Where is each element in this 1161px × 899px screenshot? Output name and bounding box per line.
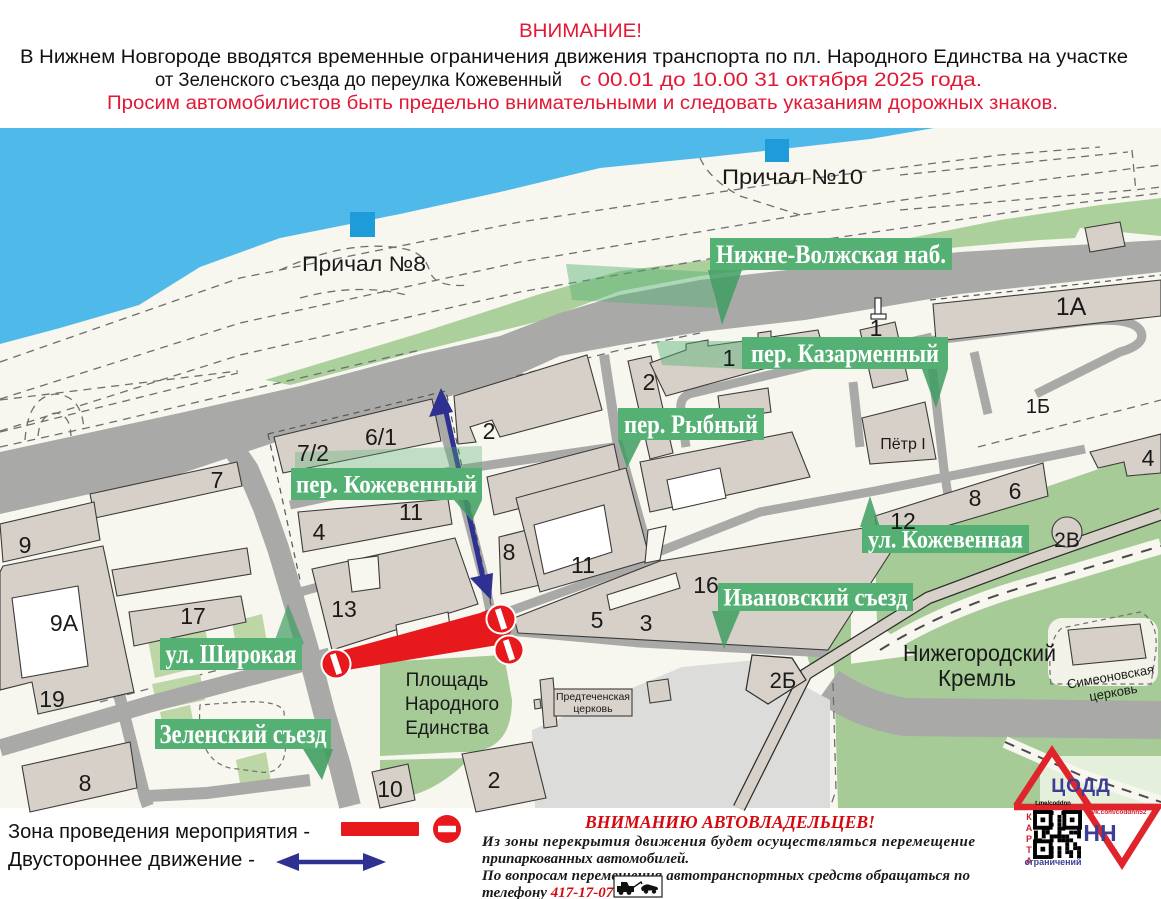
svg-text:ВНИМАНИЮ АВТОВЛАДЕЛЬЦЕВ!: ВНИМАНИЮ АВТОВЛАДЕЛЬЦЕВ!	[584, 812, 875, 832]
svg-text:11: 11	[571, 552, 595, 578]
svg-text:2: 2	[483, 418, 496, 444]
svg-text:2В: 2В	[1054, 529, 1080, 552]
svg-text:пер. Кожевенный: пер. Кожевенный	[296, 472, 477, 499]
svg-text:9: 9	[19, 532, 32, 558]
svg-text:vk.com/coddnn52: vk.com/coddnn52	[1092, 809, 1147, 816]
svg-text:2: 2	[488, 767, 501, 793]
svg-text:6/1: 6/1	[365, 424, 397, 450]
svg-text:Единства: Единства	[405, 718, 489, 739]
svg-text:10: 10	[377, 776, 403, 802]
svg-text:НН: НН	[1083, 820, 1116, 846]
svg-text:8: 8	[503, 539, 516, 565]
svg-text:Нижне-Волжская наб.: Нижне-Волжская наб.	[716, 240, 946, 269]
svg-text:7: 7	[211, 467, 224, 493]
svg-text:6: 6	[1009, 478, 1022, 504]
svg-text:Двустороннее движение -: Двустороннее движение -	[8, 849, 255, 871]
svg-text:Зеленский съезд: Зеленский съезд	[160, 719, 327, 749]
svg-text:8: 8	[79, 770, 92, 796]
svg-text:с 00.01 до 10.00 31 октября 20: с 00.01 до 10.00 31 октября 2025 года.	[580, 70, 982, 91]
svg-text:Кремль: Кремль	[938, 665, 1016, 691]
svg-text:Народного: Народного	[405, 694, 499, 715]
svg-text:ул. Широкая: ул. Широкая	[166, 639, 297, 669]
svg-text:Предтеченская: Предтеченская	[556, 691, 630, 703]
svg-text:1: 1	[723, 345, 736, 371]
svg-text:8: 8	[969, 485, 982, 511]
svg-text:припаркованных автомобилей.: припаркованных автомобилей.	[482, 851, 689, 867]
svg-text:Ивановский съезд: Ивановский съезд	[724, 585, 908, 612]
svg-text:4: 4	[313, 519, 326, 545]
svg-text:1Б: 1Б	[1026, 396, 1050, 418]
svg-text:Просим автомобилистов быть пре: Просим автомобилистов быть предельно вни…	[107, 93, 1058, 114]
svg-text:Пётр I: Пётр I	[880, 436, 926, 453]
svg-text:Т: Т	[1026, 845, 1032, 855]
svg-text:церковь: церковь	[573, 703, 613, 715]
svg-text:В Нижнем Новгороде вводятся вр: В Нижнем Новгороде вводятся временные ог…	[20, 47, 1128, 68]
svg-text:5: 5	[591, 607, 604, 633]
svg-text:t.me/coddnn: t.me/coddnn	[1035, 801, 1071, 807]
svg-text:4: 4	[1142, 445, 1155, 471]
svg-text:Р: Р	[1026, 834, 1032, 844]
svg-text:16: 16	[693, 572, 719, 598]
svg-text:9А: 9А	[50, 610, 79, 636]
svg-text:По вопросам перемещения автотр: По вопросам перемещения автотранспортных…	[481, 868, 970, 884]
svg-text:3: 3	[640, 610, 653, 636]
svg-text:ЦОДД: ЦОДД	[1051, 776, 1110, 797]
svg-text:ВНИМАНИЕ!: ВНИМАНИЕ!	[519, 21, 642, 42]
svg-text:Зона проведения мероприятия -: Зона проведения мероприятия -	[8, 821, 310, 843]
svg-text:19: 19	[39, 686, 65, 712]
svg-text:2: 2	[643, 369, 656, 395]
svg-text:пер. Казарменный: пер. Казарменный	[751, 339, 939, 368]
svg-text:Нижегородский: Нижегородский	[903, 640, 1056, 666]
svg-text:Из зоны перекрытия движения бу: Из зоны перекрытия движения будет осущес…	[481, 834, 975, 850]
svg-text:Площадь: Площадь	[406, 670, 489, 691]
svg-text:Причал №10: Причал №10	[722, 166, 863, 189]
svg-text:1А: 1А	[1056, 293, 1087, 321]
svg-text:от Зеленского съезда до переул: от Зеленского съезда до переулка Кожевен…	[155, 70, 562, 91]
svg-text:ограничений: ограничений	[1025, 857, 1082, 868]
svg-text:К: К	[1026, 812, 1032, 822]
svg-text:2Б: 2Б	[770, 668, 797, 693]
svg-text:1: 1	[870, 315, 883, 341]
svg-text:пер. Рыбный: пер. Рыбный	[624, 410, 758, 439]
svg-text:7/2: 7/2	[297, 440, 329, 466]
svg-text:телефону 417-17-07: телефону 417-17-07	[482, 885, 614, 899]
svg-text:А: А	[1026, 823, 1033, 833]
svg-text:13: 13	[331, 596, 357, 622]
svg-text:11: 11	[399, 499, 423, 525]
svg-text:12: 12	[890, 508, 916, 534]
svg-text:17: 17	[180, 603, 206, 629]
svg-text:Причал №8: Причал №8	[302, 253, 426, 276]
